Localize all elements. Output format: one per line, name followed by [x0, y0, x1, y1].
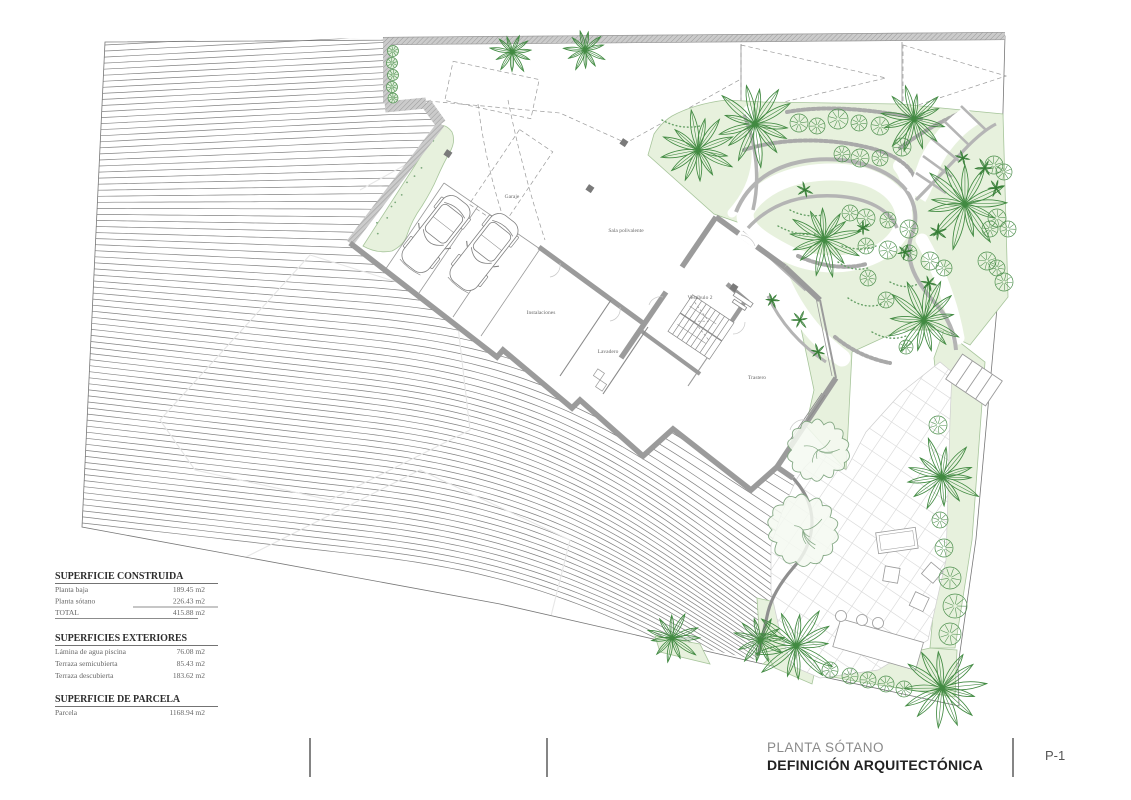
- svg-text:Terraza semicubierta: Terraza semicubierta: [55, 659, 118, 668]
- svg-text:76.08 m2: 76.08 m2: [177, 647, 206, 656]
- svg-text:P-1: P-1: [1045, 748, 1065, 763]
- svg-text:Sala polivalente: Sala polivalente: [608, 228, 644, 234]
- svg-text:PLANTA SÓTANO: PLANTA SÓTANO: [767, 740, 884, 755]
- svg-text:85.43 m2: 85.43 m2: [177, 659, 206, 668]
- svg-text:Garaje: Garaje: [505, 194, 520, 200]
- svg-text:SUPERFICIE CONSTRUIDA: SUPERFICIE CONSTRUIDA: [55, 571, 184, 582]
- svg-text:Vestíbulo 2: Vestíbulo 2: [688, 295, 713, 301]
- svg-text:DEFINICIÓN ARQUITECTÓNICA: DEFINICIÓN ARQUITECTÓNICA: [767, 756, 983, 773]
- svg-text:Terraza descubierta: Terraza descubierta: [55, 671, 114, 680]
- svg-text:183.62 m2: 183.62 m2: [173, 671, 205, 680]
- svg-text:SUPERFICIES EXTERIORES: SUPERFICIES EXTERIORES: [55, 633, 188, 644]
- svg-text:Parcela: Parcela: [55, 708, 78, 717]
- svg-text:Instalaciones: Instalaciones: [527, 310, 556, 316]
- svg-text:Planta sótano: Planta sótano: [55, 597, 95, 606]
- svg-text:Lavadero: Lavadero: [598, 349, 619, 355]
- svg-text:Planta baja: Planta baja: [55, 585, 89, 594]
- svg-text:Trastero: Trastero: [748, 375, 766, 381]
- svg-text:415.88 m2: 415.88 m2: [173, 608, 205, 617]
- svg-text:1168.94 m2: 1168.94 m2: [169, 708, 205, 717]
- svg-text:SUPERFICIE DE PARCELA: SUPERFICIE DE PARCELA: [55, 694, 181, 705]
- svg-text:TOTAL: TOTAL: [55, 608, 79, 617]
- svg-text:226.43 m2: 226.43 m2: [173, 597, 205, 606]
- svg-text:189.45 m2: 189.45 m2: [173, 585, 205, 594]
- svg-text:Lámina de agua piscina: Lámina de agua piscina: [55, 647, 127, 656]
